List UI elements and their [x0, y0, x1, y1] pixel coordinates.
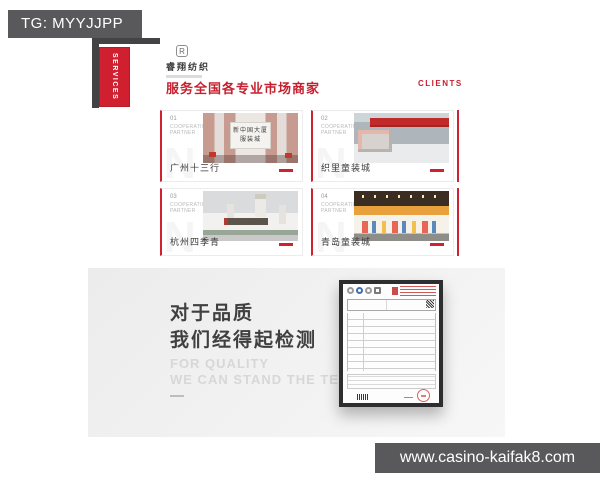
certificate-barcode — [357, 394, 368, 400]
certificate-frame — [339, 280, 443, 407]
card-more-dash — [430, 169, 444, 172]
certificate-red-stamp — [417, 389, 430, 402]
certificate-notes-block — [347, 374, 436, 389]
card-photo-market — [354, 191, 449, 241]
card-photo-building: 新中国大厦 服装城 — [203, 113, 298, 163]
certificate-paper — [343, 284, 439, 403]
photo-sign-line2: 服装城 — [231, 136, 270, 145]
client-card-qingdao[interactable]: N 04 COOPERATION PARTNER 青岛童装城 — [311, 188, 454, 256]
quality-section: 对于品质 我们经得起检测 FOR QUALITY WE CAN STAND TH… — [88, 268, 505, 437]
card-caption: 杭州四季青 — [170, 235, 220, 248]
site-url-banner: www.casino-kaifak8.com — [375, 443, 600, 473]
card-number: 01 — [170, 116, 177, 122]
card-number: 02 — [321, 116, 328, 122]
card-caption: 织里童装城 — [321, 161, 371, 174]
photo-sign: 新中国大厦 服装城 — [230, 122, 271, 149]
card-caption: 广州十三行 — [170, 161, 220, 174]
services-tab-shadow-left — [92, 38, 99, 108]
certificate-title-box — [347, 299, 436, 311]
card-more-dash — [279, 169, 293, 172]
quality-title-line1: 对于品质 — [170, 298, 254, 325]
client-card-guangzhou[interactable]: N 01 COOPERATION PARTNER 新中国大厦 服装城 广州十三行 — [160, 110, 303, 182]
partial-card-edge — [457, 188, 459, 256]
client-card-zhili[interactable]: N 02 COOPERATION PARTNER 织里童装城 — [311, 110, 454, 182]
services-tab-label: SERVICES — [111, 53, 118, 100]
certificate-table-rows — [347, 313, 436, 371]
services-tab-shadow-top — [92, 38, 160, 44]
services-tab[interactable]: SERVICES — [99, 47, 130, 107]
quality-subtitle-line1: FOR QUALITY — [170, 356, 269, 371]
quality-title-line2: 我们经得起检测 — [170, 325, 317, 352]
card-number: 04 — [321, 194, 328, 200]
certificate-lab-red-text — [400, 286, 436, 297]
page: TG: MYYJJPP SERVICES R 睿翔纺织 服务全国各专业市场商家 … — [0, 0, 600, 480]
card-number: 03 — [170, 194, 177, 200]
quality-dash — [170, 395, 184, 397]
certificate-signature — [404, 397, 413, 398]
quality-subtitle-line2: WE CAN STAND THE TEST — [170, 372, 358, 387]
section-heading: 服务全国各专业市场商家 — [166, 78, 320, 97]
photo-sign-line1: 新中国大厦 — [231, 127, 270, 136]
site-logo[interactable]: R 睿翔纺织 — [166, 45, 246, 78]
card-more-dash — [279, 243, 293, 246]
certificate-accreditation-logos — [347, 287, 381, 294]
client-card-hangzhou[interactable]: N 03 COOPERATION PARTNER 杭州四季青 — [160, 188, 303, 256]
logo-name: 睿翔纺织 — [166, 60, 246, 73]
tg-contact-banner: TG: MYYJJPP — [8, 10, 142, 38]
card-caption: 青岛童装城 — [321, 235, 371, 248]
card-photo-building — [354, 113, 449, 163]
card-more-dash — [430, 243, 444, 246]
certificate-qr-code — [426, 300, 434, 308]
partial-card-edge — [457, 110, 459, 182]
card-photo-building — [203, 191, 298, 241]
logo-monogram-icon: R — [176, 45, 188, 57]
clients-label: CLIENTS — [418, 79, 463, 88]
